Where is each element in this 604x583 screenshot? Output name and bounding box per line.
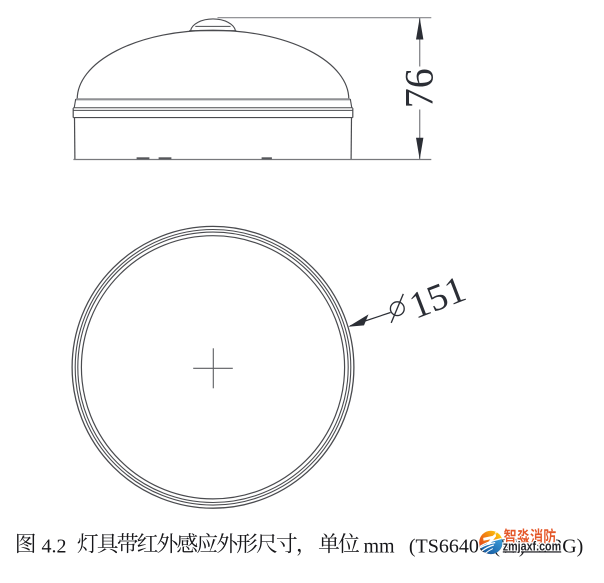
svg-text:zmjaxf.com: zmjaxf.com (503, 538, 561, 553)
svg-text:76: 76 (396, 68, 441, 108)
svg-text:mm: mm (364, 535, 396, 557)
svg-text:4.2: 4.2 (42, 535, 67, 557)
